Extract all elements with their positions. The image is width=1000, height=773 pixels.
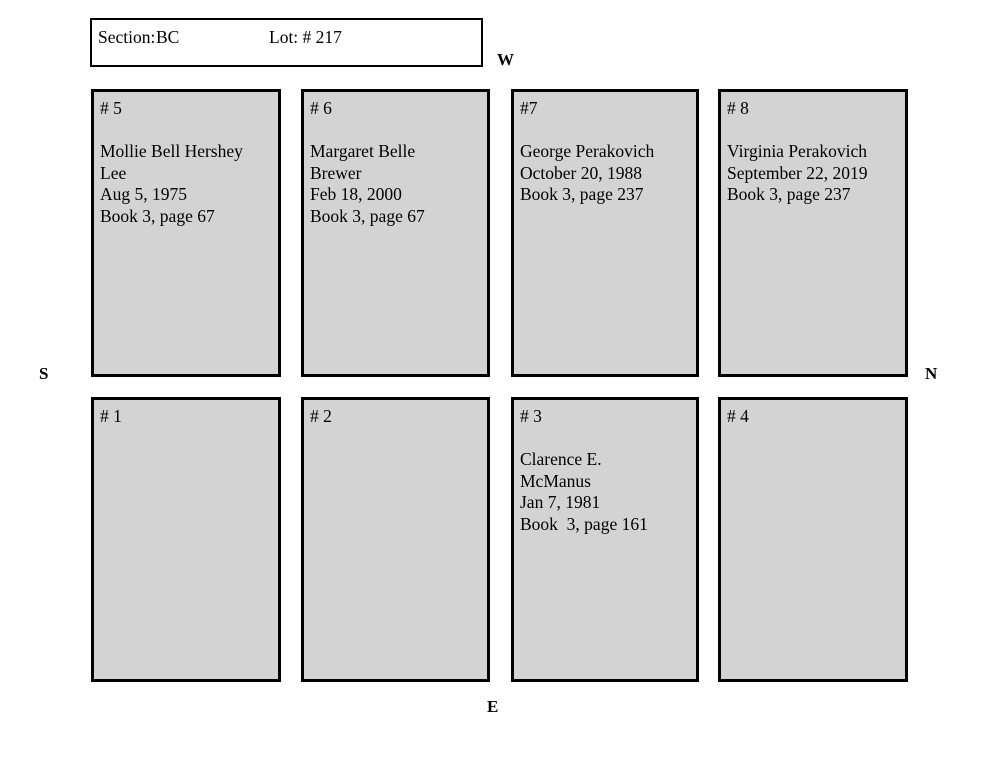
plot-7-number: #7 xyxy=(520,97,690,119)
compass-north-label: N xyxy=(925,364,937,384)
plot-7-book-reference: Book 3, page 237 xyxy=(520,184,690,206)
plot-6-number: # 6 xyxy=(310,97,481,119)
plot-4: # 4 xyxy=(718,397,908,682)
plot-8-date: September 22, 2019 xyxy=(727,163,899,185)
section-value: BC xyxy=(156,26,179,48)
plot-6-name-line-2: Brewer xyxy=(310,163,481,185)
plot-5-name-line-2: Lee xyxy=(100,163,272,185)
plot-3-name-line-2: McManus xyxy=(520,471,690,493)
plot-3-book-reference: Book 3, page 161 xyxy=(520,514,690,536)
plot-6: # 6 Margaret Belle Brewer Feb 18, 2000 B… xyxy=(301,89,490,377)
plot-5-date: Aug 5, 1975 xyxy=(100,184,272,206)
plot-7: #7 George Perakovich October 20, 1988 Bo… xyxy=(511,89,699,377)
plot-5-number: # 5 xyxy=(100,97,272,119)
plot-2-number: # 2 xyxy=(310,405,481,427)
plot-3-date: Jan 7, 1981 xyxy=(520,492,690,514)
plot-3-name-line-1: Clarence E. xyxy=(520,449,690,471)
plot-1-number: # 1 xyxy=(100,405,272,427)
plot-3: # 3 Clarence E. McManus Jan 7, 1981 Book… xyxy=(511,397,699,682)
plot-6-book-reference: Book 3, page 67 xyxy=(310,206,481,228)
plot-8-name: Virginia Perakovich xyxy=(727,141,899,163)
section-lot-header-box: Section: BC Lot: # 217 xyxy=(90,18,483,67)
compass-west-label: W xyxy=(497,50,514,70)
compass-east-label: E xyxy=(487,697,498,717)
plot-5: # 5 Mollie Bell Hershey Lee Aug 5, 1975 … xyxy=(91,89,281,377)
plot-6-date: Feb 18, 2000 xyxy=(310,184,481,206)
compass-south-label: S xyxy=(39,364,48,384)
plot-5-book-reference: Book 3, page 67 xyxy=(100,206,272,228)
plot-2: # 2 xyxy=(301,397,490,682)
plot-8-book-reference: Book 3, page 237 xyxy=(727,184,899,206)
plot-4-number: # 4 xyxy=(727,405,899,427)
plot-8: # 8 Virginia Perakovich September 22, 20… xyxy=(718,89,908,377)
plot-1: # 1 xyxy=(91,397,281,682)
plot-6-name-line-1: Margaret Belle xyxy=(310,141,481,163)
lot-label: Lot: # 217 xyxy=(269,26,342,48)
plot-5-name-line-1: Mollie Bell Hershey xyxy=(100,141,272,163)
section-label: Section: xyxy=(98,26,155,48)
plot-7-name: George Perakovich xyxy=(520,141,690,163)
plot-8-number: # 8 xyxy=(727,97,899,119)
plot-3-number: # 3 xyxy=(520,405,690,427)
plot-7-date: October 20, 1988 xyxy=(520,163,690,185)
